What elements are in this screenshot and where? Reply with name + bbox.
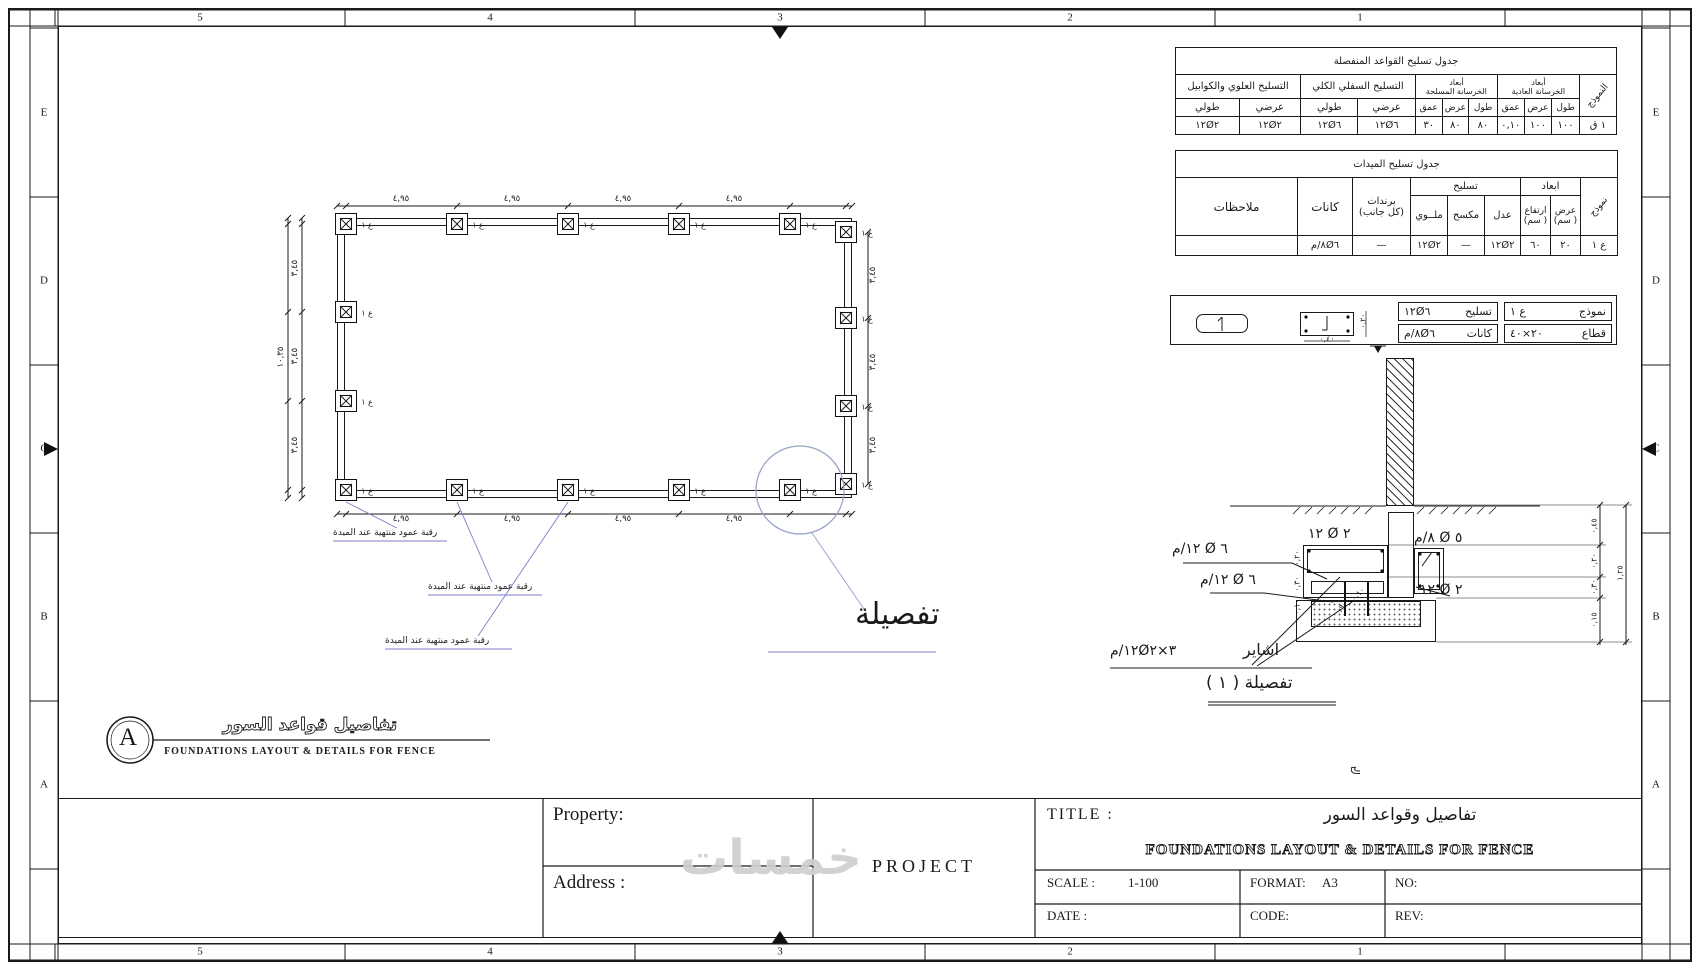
ruler-number: 1	[1357, 12, 1363, 25]
legend-stirrups: كاناتم/٨Ø٦	[1398, 324, 1498, 343]
ruler-letter: A	[1652, 779, 1660, 792]
beam-cage-upper	[1307, 549, 1384, 573]
dim-label: ٣,٤٥	[869, 437, 879, 453]
ruler-letter: D	[1652, 275, 1660, 288]
detail-callout-word: تفصيلة	[855, 598, 940, 633]
t2-group-reinf: تسليح	[1411, 178, 1521, 196]
t1-value: ٠,١٠	[1497, 117, 1524, 135]
date-label: DATE :	[1047, 909, 1087, 924]
rebar-label: م/١٢ Ø ٦	[1200, 572, 1256, 588]
t1-h: عرض	[1442, 99, 1469, 117]
footing-label: ١ ع	[861, 228, 873, 237]
table1-title: جدول تسليح القواعد المنفصلة	[1176, 48, 1617, 75]
sheet-title-arabic: تفاصيل وقواعد السور	[1230, 806, 1570, 826]
footing-neck	[840, 226, 852, 238]
t1-value: ١٠٠	[1552, 117, 1580, 135]
footing	[557, 479, 579, 501]
beam-section-sketch	[1300, 312, 1354, 336]
ruler-number: 2	[1067, 12, 1073, 25]
footing	[335, 301, 357, 323]
t1-h: عمق	[1497, 99, 1524, 117]
footing	[335, 390, 357, 412]
dim-label: ٤,٩٥	[615, 195, 631, 205]
dim-label: ٤,٩٥	[393, 515, 409, 525]
fence-wall-inner	[344, 225, 845, 491]
watermark: خمسات	[680, 830, 862, 886]
beam-plan-sketch	[1196, 314, 1248, 333]
ruler-number: 4	[487, 946, 493, 959]
t1-h: طول	[1469, 99, 1498, 117]
column-neck-callout: رقبة عمود منتهية عند الميدة	[428, 582, 532, 592]
rebar-label: م/١٢Ø٢×٣	[1110, 643, 1176, 659]
footing-neck	[784, 484, 796, 496]
beam-cage-lower	[1311, 581, 1384, 594]
dim-label: ٣,٤٥	[291, 348, 301, 364]
footing	[835, 221, 857, 243]
footing-label: ١ ع	[583, 486, 595, 495]
t2-value	[1176, 236, 1298, 256]
t1-value: ١٢Ø٢	[1239, 117, 1301, 135]
footing-neck	[840, 478, 852, 490]
t1-h: عمق	[1415, 99, 1442, 117]
footing	[835, 307, 857, 329]
t1-h: عرضي	[1239, 99, 1301, 117]
rebar-label: ١٢ Ø ٢	[1308, 526, 1350, 542]
ruler-number: 1	[1357, 946, 1363, 959]
dim-label: ٤,٩٥	[726, 195, 742, 205]
t1-h: طولي	[1176, 99, 1240, 117]
footing-neck	[562, 218, 574, 230]
sheet-title-english: FOUNDATIONS LAYOUT & DETAILS FOR FENCE	[1146, 842, 1535, 858]
t2-value: —	[1353, 236, 1411, 256]
footing-neck	[840, 400, 852, 412]
view-title-arabic: تفاصيل قواعد السور	[222, 715, 397, 735]
legend-reinf: تسليح١٢Ø٦	[1398, 302, 1498, 321]
ruler-letter: D	[40, 275, 48, 288]
dim-label: ٣,٤٥	[291, 437, 301, 453]
rebar-label: م/١٢ Ø ٦	[1172, 541, 1228, 557]
footing-neck	[340, 395, 352, 407]
t1-value: ق ١	[1579, 117, 1616, 135]
dim-label: ١٠,٣٥	[277, 347, 287, 368]
ruler-letter: E	[41, 107, 48, 120]
t2-value: ٢٠	[1551, 236, 1581, 256]
scale-label: SCALE :	[1047, 876, 1095, 891]
dim-label: ٤,٩٥	[393, 195, 409, 205]
footing-label: ١ ع	[861, 480, 873, 489]
ruler-number: 5	[197, 12, 203, 25]
footing-label: ١ ع	[361, 486, 373, 495]
address-label: Address :	[553, 872, 625, 894]
tie-beams-reinforcement-table: جدول تسليح الميدات ملاحظات كانات برندات …	[1175, 150, 1618, 256]
t1-model-header: النموذج	[1579, 75, 1616, 117]
dim-label: ٤,٩٥	[504, 195, 520, 205]
t2-value: ٦٠	[1521, 236, 1551, 256]
table2-title: جدول تسليح الميدات	[1176, 151, 1618, 178]
plain-concrete-stipple	[1311, 601, 1421, 627]
footing-neck	[562, 484, 574, 496]
t2-h-side-bars: برندات (كل جانب)	[1353, 178, 1411, 236]
t2-h: ارتفاع ( سم)	[1521, 196, 1551, 236]
ruler-letter: B	[1652, 611, 1659, 624]
footing-label: ١ ع	[694, 486, 706, 495]
t2-value: ١٢Ø٢	[1411, 236, 1448, 256]
footing-label: ١ ع	[861, 314, 873, 323]
footing	[668, 213, 690, 235]
ruler-letter: A	[40, 779, 48, 792]
footing-label: ١ ع	[805, 486, 817, 495]
dim-label: ٣,٤٥	[869, 354, 879, 370]
detail-dim-label: ٠,٣٠	[1292, 576, 1301, 591]
footing-label: ١ ع	[361, 308, 373, 317]
ruler-letter: B	[40, 611, 47, 624]
detail-dim-label: ١,٢٥	[1615, 565, 1624, 580]
footing	[446, 213, 468, 235]
view-title-ar-svg: تفاصيل قواعد السور	[180, 710, 440, 738]
column-neck-callout: رقبة عمود منتهية عند الميدة	[333, 528, 437, 538]
title-label: TITLE :	[1047, 806, 1114, 824]
view-bubble-letter: A	[119, 724, 137, 753]
no-tie-note: × لا يتم ربط قواعد السور بالقواعد بامنشا…	[1350, 752, 1360, 776]
rebar-label: ١٢ Ø ٢	[1420, 582, 1462, 598]
footing	[557, 213, 579, 235]
dim-label: ٣,٤٥	[291, 260, 301, 276]
dim-label: ٣,٤٥	[869, 267, 879, 283]
footing	[779, 479, 801, 501]
detail-dim-label: ٠,١٥	[1589, 612, 1598, 627]
detail-dim-label: ٠,٢٠	[1358, 313, 1367, 328]
footing-label: ١ ع	[583, 220, 595, 229]
t1-value: ١٢Ø٢	[1176, 117, 1240, 135]
dim-label: ٤,٩٥	[504, 515, 520, 525]
footing-neck	[451, 484, 463, 496]
t2-h: مكسح	[1448, 196, 1485, 236]
footing-label: ١ ع	[361, 220, 373, 229]
no-label: NO:	[1395, 876, 1417, 891]
detail-dim-label: ٠,٢٠	[1292, 550, 1301, 565]
t1-value: ١٢Ø٦	[1301, 117, 1358, 135]
ruler-letter: C	[40, 443, 47, 456]
detail-caption: تفصيلة ( ١ )	[1206, 674, 1293, 694]
dim-label: ٤,٩٥	[615, 515, 631, 525]
column-neck-callout: رقبة عمود منتهية عند الميدة	[385, 636, 489, 646]
footing-label: ١ ع	[472, 486, 484, 495]
t2-h: عدل	[1485, 196, 1521, 236]
footing-label: ١ ع	[694, 220, 706, 229]
t1-h: عرض	[1524, 99, 1552, 117]
ruler-number: 4	[487, 12, 493, 25]
wall-hatched	[1386, 358, 1414, 506]
rev-label: REV:	[1395, 909, 1424, 924]
footing-label: ١ ع	[361, 397, 373, 406]
t1-group-rc: أبعاد الخرسانة المسلحة	[1415, 75, 1497, 99]
dim-label: ٤,٩٥	[726, 515, 742, 525]
footing-label: ١ ع	[805, 220, 817, 229]
t2-h: ملــوي	[1411, 196, 1448, 236]
t2-h: عرض ( سم)	[1551, 196, 1581, 236]
format-value: A3	[1322, 876, 1338, 891]
t2-model-header: نموذج	[1581, 178, 1618, 236]
t2-value: —	[1448, 236, 1485, 256]
footing-neck	[784, 218, 796, 230]
ruler-number: 3	[777, 946, 783, 959]
t1-group-pc: أبعاد الخرسانة العادية	[1497, 75, 1579, 99]
t1-h: طولي	[1301, 99, 1358, 117]
footing-label: ١ ع	[861, 402, 873, 411]
neck-below-ground	[1388, 512, 1414, 598]
footing	[335, 479, 357, 501]
t2-group-dims: ابعاد	[1521, 178, 1581, 196]
legend-section: قطاع٤٠×٢٠	[1504, 324, 1612, 343]
footing	[779, 213, 801, 235]
t1-value: ١٠٠	[1524, 117, 1552, 135]
detail-dim-label: ٠,٢٠	[1589, 553, 1598, 568]
footing-neck	[340, 218, 352, 230]
property-label: Property:	[553, 804, 624, 826]
detail-dim-label: ٠,١٠	[1292, 599, 1301, 614]
t1-value: ٨٠	[1442, 117, 1469, 135]
code-label: CODE:	[1250, 909, 1289, 924]
ruler-number: 2	[1067, 946, 1073, 959]
t1-h: عرضي	[1358, 99, 1415, 117]
t2-value: ١٢Ø٢	[1485, 236, 1521, 256]
legend-model: نموذج١ ع	[1504, 302, 1612, 321]
ruler-letter: C	[1652, 443, 1659, 456]
t1-value: ٣٠	[1415, 117, 1442, 135]
t2-value: ١ ع	[1581, 236, 1618, 256]
detail-dim-label: ٠,٣٠	[1589, 579, 1598, 594]
t1-group-lower: التسليح السفلي الكلي	[1301, 75, 1416, 99]
t1-value: ١٢Ø٦	[1358, 117, 1415, 135]
t1-value: ٨٠	[1469, 117, 1498, 135]
footing-neck	[340, 306, 352, 318]
view-title-english: FOUNDATIONS LAYOUT & DETAILS FOR FENCE	[150, 746, 450, 758]
footing	[668, 479, 690, 501]
format-label: FORMAT:	[1250, 876, 1306, 891]
detail-dim-label: ٠,٤٠	[1319, 334, 1334, 343]
footing-label: ١ ع	[472, 220, 484, 229]
t2-h-notes: ملاحظات	[1176, 178, 1298, 236]
footing	[835, 473, 857, 495]
drawing-sheet: جدول تسليح القواعد المنفصلة التسليح العل…	[0, 0, 1700, 970]
footing	[446, 479, 468, 501]
t1-h: طول	[1552, 99, 1580, 117]
scale-value: 1-100	[1128, 876, 1158, 891]
ruler-letter: E	[1653, 107, 1660, 120]
ruler-number: 3	[777, 12, 783, 25]
t2-value: م/٨Ø٦	[1298, 236, 1353, 256]
footing	[835, 395, 857, 417]
sheet-title-en-svg: FOUNDATIONS LAYOUT & DETAILS FOR FENCE	[1040, 836, 1640, 862]
rebar-label: م/٨ Ø ٥	[1414, 530, 1462, 546]
t1-group-upper: التسليح العلوي والكوابيل	[1176, 75, 1301, 99]
footing	[335, 213, 357, 235]
ruler-number: 5	[197, 946, 203, 959]
footing-neck	[673, 484, 685, 496]
footing-neck	[340, 484, 352, 496]
footing-neck	[451, 218, 463, 230]
t2-h-stirrups: كانات	[1298, 178, 1353, 236]
footing-neck	[840, 312, 852, 324]
footings-reinforcement-table: جدول تسليح القواعد المنفصلة التسليح العل…	[1175, 47, 1617, 135]
footing-neck	[673, 218, 685, 230]
detail-dim-label: ٠,٤٥	[1589, 518, 1598, 533]
note-svg: × لا يتم ربط قواعد السور بالقواعد بامنشا…	[930, 746, 1360, 782]
dowels-word: اشاير	[1243, 641, 1279, 659]
